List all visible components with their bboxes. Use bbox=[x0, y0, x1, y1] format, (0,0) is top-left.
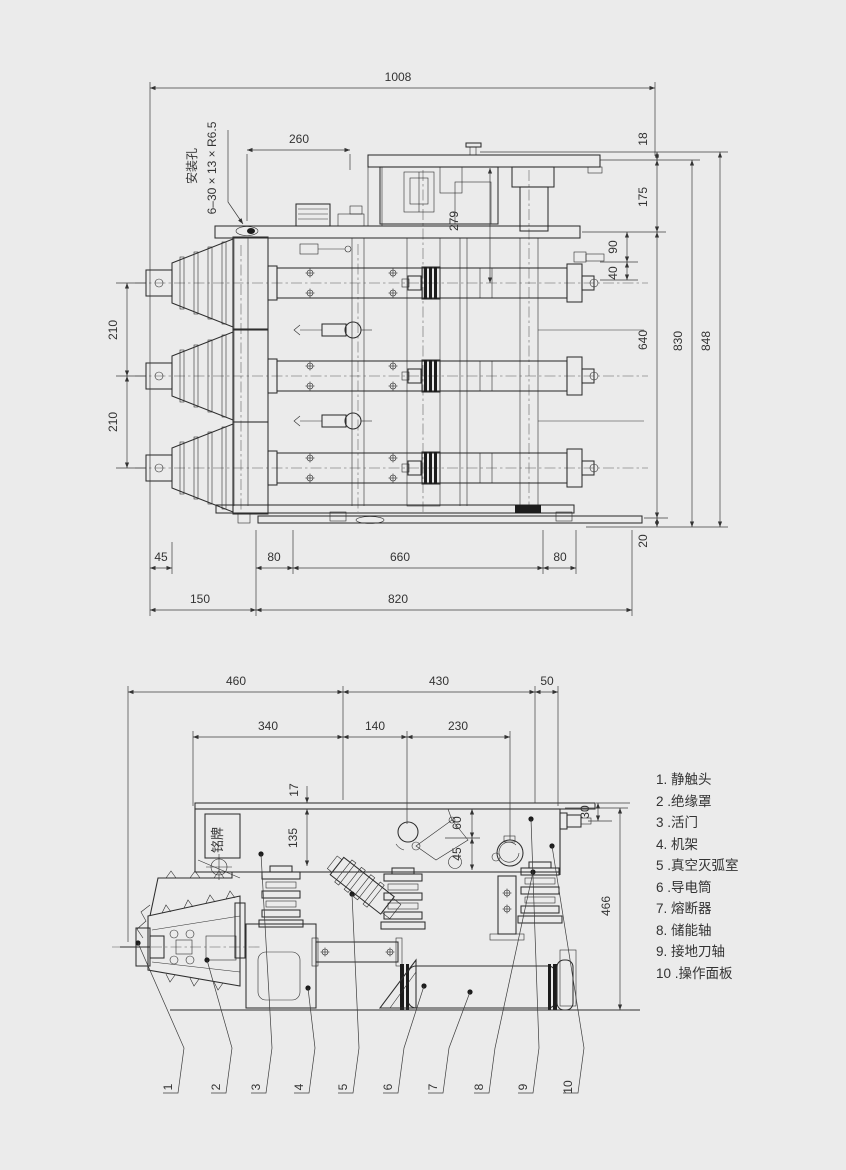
dim-820: 820 bbox=[388, 592, 408, 606]
legend-item-7: 7. 熔断器 bbox=[656, 901, 712, 916]
legend-item-8: 8. 储能轴 bbox=[656, 923, 712, 938]
callout-8: 8 bbox=[472, 1083, 486, 1090]
callout-10: 10 bbox=[561, 1080, 575, 1094]
mounting-hole-note-line2: 6–30 × 13 × R6.5 bbox=[205, 121, 219, 214]
dim-45: 45 bbox=[154, 550, 168, 564]
dim-466: 466 bbox=[599, 896, 613, 916]
callout-4: 4 bbox=[292, 1083, 306, 1090]
mounting-hole-note-line1: 安装孔 bbox=[184, 148, 199, 184]
linkage bbox=[294, 322, 644, 338]
legend-item-6: 6 .导电筒 bbox=[656, 879, 712, 895]
drawing-sheet: 安装孔 6–30 × 13 × R6.5 1008 260 279 18 bbox=[0, 0, 846, 1170]
callout-leaders bbox=[135, 816, 584, 1093]
dim-17: 17 bbox=[287, 783, 301, 797]
dim-848: 848 bbox=[699, 331, 713, 351]
dim-210-a: 210 bbox=[106, 320, 120, 340]
callout-5: 5 bbox=[336, 1083, 350, 1090]
dim-30: 30 bbox=[578, 805, 592, 819]
legend-item-5: 5 .真空灭弧室 bbox=[656, 857, 739, 873]
technical-drawing: 安装孔 6–30 × 13 × R6.5 1008 260 279 18 bbox=[0, 0, 846, 1170]
legend-item-10: 10 .操作面板 bbox=[656, 966, 733, 981]
dim-830: 830 bbox=[671, 331, 685, 351]
dim-230: 230 bbox=[448, 719, 468, 733]
dim-50: 50 bbox=[540, 674, 554, 688]
dim-90: 90 bbox=[606, 240, 620, 254]
callout-9: 9 bbox=[516, 1083, 530, 1090]
support-insulator bbox=[381, 868, 425, 929]
dim-660: 660 bbox=[390, 550, 410, 564]
legend-item-3: 3 .活门 bbox=[656, 815, 698, 830]
dim-40: 40 bbox=[606, 266, 620, 280]
legend-item-1: 1. 静触头 bbox=[656, 772, 712, 787]
legend-item-2: 2 .绝缘罩 bbox=[656, 794, 712, 809]
legend-item-9: 9. 接地刀轴 bbox=[656, 943, 725, 959]
legend: 1. 静触头 2 .绝缘罩 3 .活门 4. 机架 5 .真空灭弧室 6 .导电… bbox=[656, 772, 739, 981]
support-insulator bbox=[518, 862, 562, 923]
dim-135: 135 bbox=[286, 828, 300, 848]
dim-80-a: 80 bbox=[267, 550, 281, 564]
legend-item-4: 4. 机架 bbox=[656, 837, 698, 852]
dim-140: 140 bbox=[365, 719, 385, 733]
dim-340: 340 bbox=[258, 719, 278, 733]
nameplate-label: 铭牌 bbox=[210, 827, 225, 853]
callout-3: 3 bbox=[249, 1083, 263, 1090]
callout-6: 6 bbox=[381, 1083, 395, 1090]
dim-640: 640 bbox=[636, 330, 650, 350]
linkage bbox=[294, 413, 644, 429]
dim-45-front: 45 bbox=[450, 847, 464, 861]
dim-150: 150 bbox=[190, 592, 210, 606]
dim-18: 18 bbox=[636, 132, 650, 146]
front-view-drawing: 铭牌 bbox=[112, 674, 640, 1094]
dim-1008: 1008 bbox=[385, 70, 412, 84]
dim-260: 260 bbox=[289, 132, 309, 146]
dim-210-b: 210 bbox=[106, 412, 120, 432]
dim-80-b: 80 bbox=[553, 550, 567, 564]
top-view-drawing: 安装孔 6–30 × 13 × R6.5 1008 260 279 18 bbox=[106, 70, 728, 616]
callout-7: 7 bbox=[426, 1083, 440, 1090]
dim-460: 460 bbox=[226, 674, 246, 688]
support-insulator bbox=[259, 866, 303, 927]
dim-60: 60 bbox=[450, 816, 464, 830]
dim-175: 175 bbox=[636, 187, 650, 207]
dim-430: 430 bbox=[429, 674, 449, 688]
callout-2: 2 bbox=[209, 1083, 223, 1090]
callout-1: 1 bbox=[161, 1083, 175, 1090]
dim-20: 20 bbox=[636, 534, 650, 548]
dim-279: 279 bbox=[447, 211, 461, 231]
